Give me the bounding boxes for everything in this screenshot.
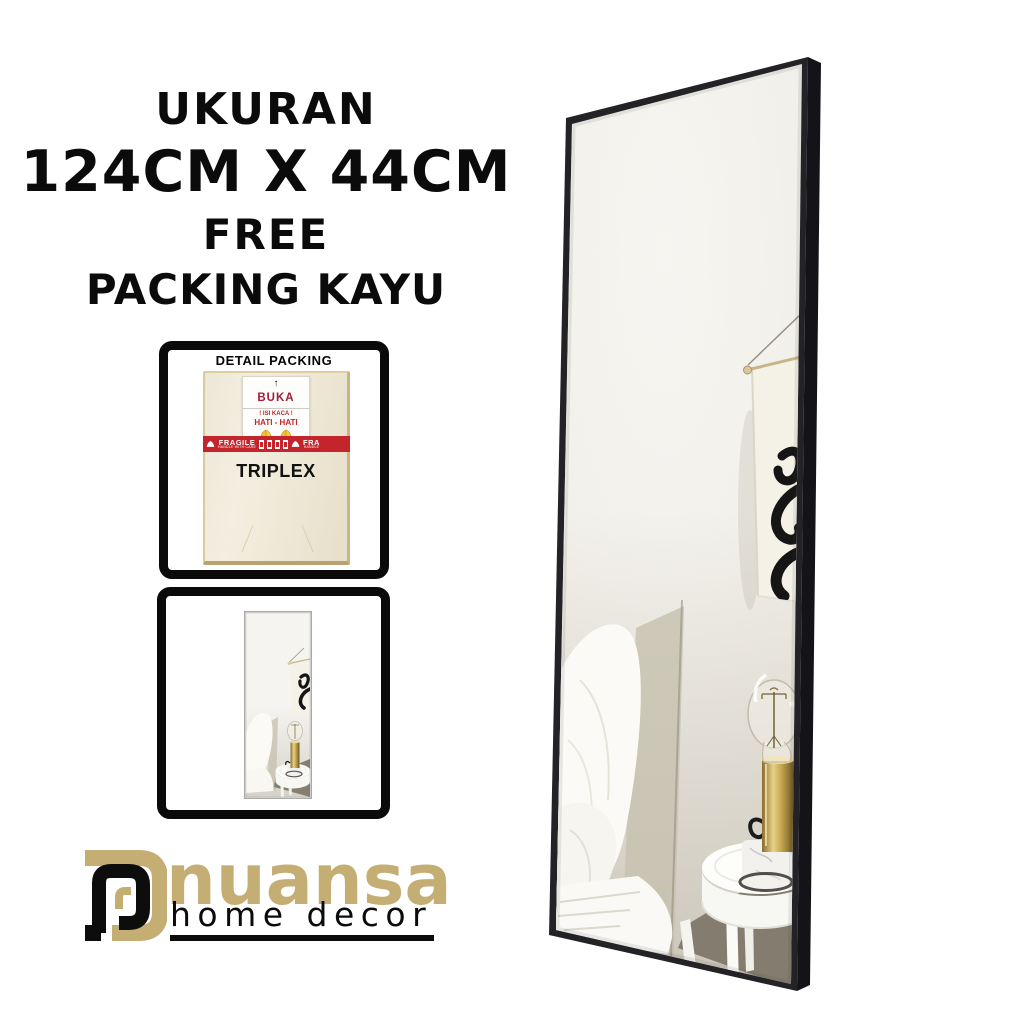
tape-symbol-box [283,440,288,449]
mirror-product-photo [520,40,840,1010]
praying-hands-icon-white [206,440,215,448]
tape-symbol-box [275,440,280,449]
tape-symbol-box [267,440,272,449]
brand-logo: nuansa home decor [85,846,485,958]
plywood-package-photo: ↑ BUKA ! ISI KACA ! HATI - HATI [203,371,350,565]
promo-line-ukuran: UKURAN [0,84,532,136]
mini-mirror-photo [244,611,312,799]
fragile-tape: FRAGILE HANDLE WITH CARE FRA HANDLE [203,436,350,452]
product-thumbnail-box [157,587,390,819]
brand-mark-icon [85,849,167,941]
detail-packing-title: DETAIL PACKING [168,353,380,368]
label-hati-hati-text: HATI - HATI [243,418,309,427]
praying-hands-icon-white [291,440,300,448]
tape-symbol-box [259,440,264,449]
package-warning-label: ↑ BUKA ! ISI KACA ! HATI - HATI [242,376,310,444]
promo-text-block: UKURAN 124CM X 44CM FREE PACKING KAYU [0,84,532,318]
label-open-section: ↑ BUKA [243,377,309,409]
wood-grain-mark [241,525,313,552]
promo-line-packing: PACKING KAYU [0,262,532,318]
fragile-text-group-repeat: FRA HANDLE [303,439,320,450]
brand-tagline: home decor [170,898,434,941]
product-promo-page: { "header": { "lines": ["UKURAN", "124CM… [0,0,1024,1024]
promo-line-size: 124CM X 44CM [0,136,532,208]
arrow-up-icon: ↑ [243,379,309,388]
material-label: TRIPLEX [205,461,347,482]
handle-with-care-text: HANDLE WITH CARE [218,446,256,450]
detail-packing-box: DETAIL PACKING ↑ BUKA ! ISI KACA ! HATI … [159,341,389,579]
label-buka-text: BUKA [257,392,294,404]
handle-text-repeat: HANDLE [304,446,319,450]
label-isi-kaca-text: ! ISI KACA ! [243,411,309,418]
promo-line-free: FREE [0,208,532,262]
fragile-text-group: FRAGILE HANDLE WITH CARE [218,439,256,450]
